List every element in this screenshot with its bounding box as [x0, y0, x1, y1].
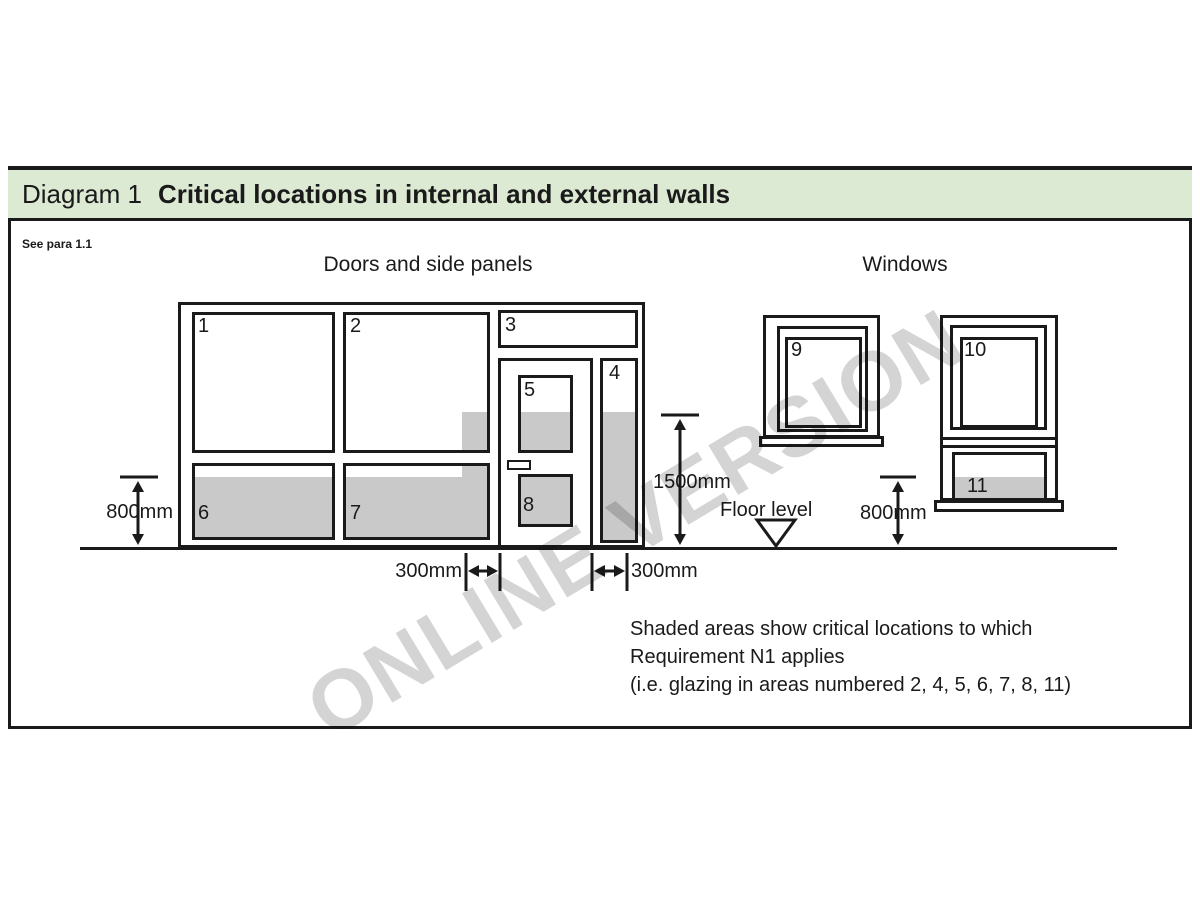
dim-label-300-right: 300mm	[631, 560, 698, 582]
floor-level-label: Floor level	[720, 499, 812, 521]
shading-note-line-2: Requirement N1 applies	[630, 643, 1071, 671]
dim-arrow-300-right	[592, 553, 627, 591]
dim-arrow-300-left	[466, 553, 500, 591]
dimension-annotations	[0, 0, 1200, 900]
shading-note: Shaded areas show critical locations to …	[630, 615, 1071, 699]
dim-label-300-left: 300mm	[382, 560, 462, 582]
dim-label-800-right: 800mm	[860, 502, 927, 524]
dim-label-800-left: 800mm	[70, 501, 173, 523]
shading-note-line-1: Shaded areas show critical locations to …	[630, 615, 1071, 643]
shading-note-line-3: (i.e. glazing in areas numbered 2, 4, 5,…	[630, 671, 1071, 699]
dim-label-1500: 1500mm	[653, 471, 731, 493]
floor-level-marker	[757, 520, 795, 546]
document-page: Diagram 1 Critical locations in internal…	[0, 0, 1200, 900]
